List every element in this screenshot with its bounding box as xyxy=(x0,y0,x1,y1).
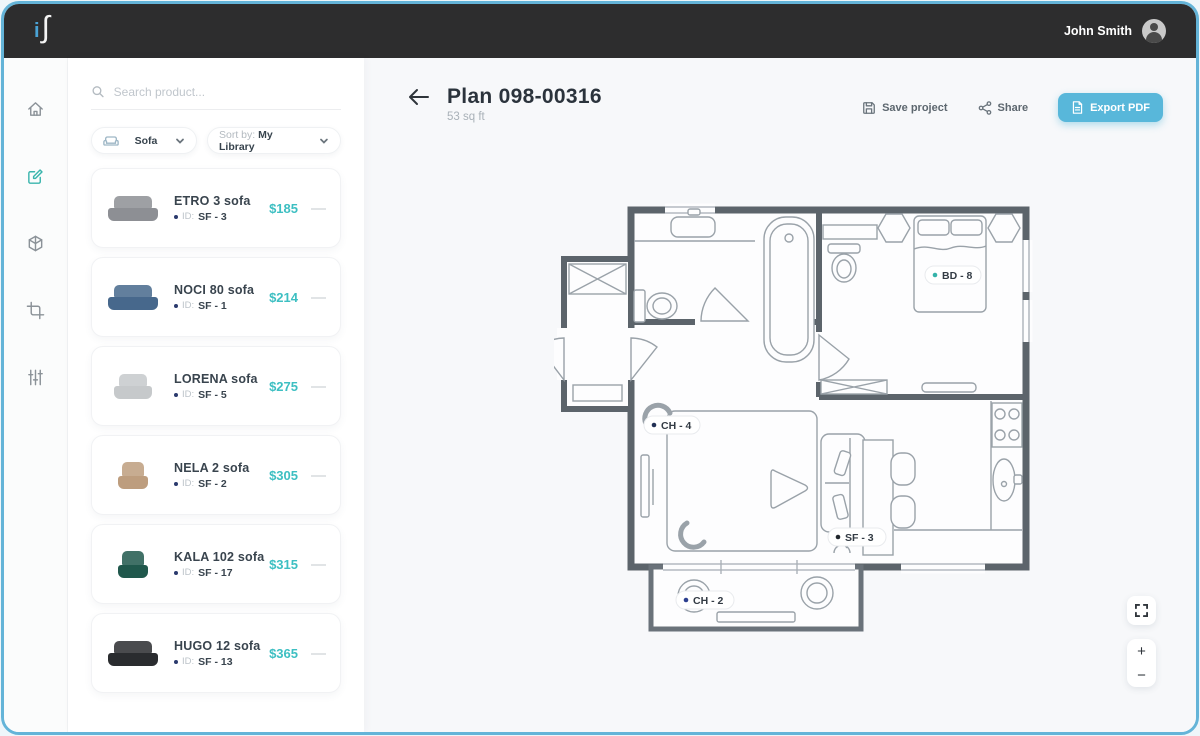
logo-i: i xyxy=(34,20,40,43)
id-dot xyxy=(174,482,178,486)
svg-text:BD - 8: BD - 8 xyxy=(942,270,972,282)
product-thumbnail xyxy=(104,274,162,320)
filter-row: Sofa Sort by: My Library xyxy=(91,127,341,154)
product-id: SF - 13 xyxy=(198,656,232,668)
top-bar: i ∫ John Smith xyxy=(4,4,1196,58)
product-list: ETRO 3 sofa ID: SF - 3 $185 — NOCI 80 xyxy=(91,168,341,693)
product-name: LORENA sofa xyxy=(174,372,258,386)
product-thumbnail xyxy=(104,630,162,676)
product-sidebar: Sofa Sort by: My Library xyxy=(68,58,364,732)
chevron-down-icon xyxy=(175,136,185,146)
share-icon xyxy=(978,101,992,115)
product-card[interactable]: HUGO 12 sofa ID: SF - 13 $365 — xyxy=(91,613,341,693)
edit-plan-icon[interactable] xyxy=(19,159,53,193)
product-price: $275 xyxy=(269,379,298,394)
product-card[interactable]: LORENA sofa ID: SF - 5 $275 — xyxy=(91,346,341,426)
crop-icon[interactable] xyxy=(19,293,53,327)
category-dropdown[interactable]: Sofa xyxy=(91,127,197,154)
home-icon[interactable] xyxy=(19,92,53,126)
plan-canvas[interactable]: Plan 098-00316 53 sq ft Save project Sha… xyxy=(364,58,1196,732)
product-name: NELA 2 sofa xyxy=(174,461,249,475)
save-icon xyxy=(862,101,876,115)
sort-dropdown[interactable]: Sort by: My Library xyxy=(207,127,341,154)
user-name: John Smith xyxy=(1064,24,1132,38)
label-ch2[interactable]: CH - 2 xyxy=(676,591,734,609)
fullscreen-button[interactable] xyxy=(1127,596,1156,625)
id-dot xyxy=(174,304,178,308)
product-id-label: ID: xyxy=(182,567,194,578)
product-id: SF - 1 xyxy=(198,300,227,312)
zoom-out-button[interactable]: − xyxy=(1127,663,1156,687)
remove-product-button[interactable]: — xyxy=(311,379,326,394)
search-input[interactable] xyxy=(114,85,341,99)
id-dot xyxy=(174,660,178,664)
product-id-label: ID: xyxy=(182,478,194,489)
product-card[interactable]: NELA 2 sofa ID: SF - 2 $305 — xyxy=(91,435,341,515)
chevron-down-icon xyxy=(319,136,329,146)
product-price: $305 xyxy=(269,468,298,483)
id-dot xyxy=(174,215,178,219)
product-id-label: ID: xyxy=(182,389,194,400)
search-bar[interactable] xyxy=(91,84,341,110)
label-bd8[interactable]: BD - 8 xyxy=(925,266,981,284)
svg-text:CH - 4: CH - 4 xyxy=(661,420,691,432)
product-card[interactable]: KALA 102 sofa ID: SF - 17 $315 — xyxy=(91,524,341,604)
product-name: KALA 102 sofa xyxy=(174,550,264,564)
sofa-icon xyxy=(103,135,119,147)
product-price: $365 xyxy=(269,646,298,661)
svg-text:CH - 2: CH - 2 xyxy=(693,595,723,607)
remove-product-button[interactable]: — xyxy=(311,290,326,305)
fullscreen-icon xyxy=(1135,604,1148,617)
save-project-button[interactable]: Save project xyxy=(862,101,947,115)
id-dot xyxy=(174,571,178,575)
product-name: ETRO 3 sofa xyxy=(174,194,251,208)
product-id: SF - 5 xyxy=(198,389,227,401)
label-ch4[interactable]: CH - 4 xyxy=(644,416,700,434)
remove-product-button[interactable]: — xyxy=(311,201,326,216)
plan-area: 53 sq ft xyxy=(447,111,602,123)
remove-product-button[interactable]: — xyxy=(311,646,326,661)
product-card[interactable]: ETRO 3 sofa ID: SF - 3 $185 — xyxy=(91,168,341,248)
product-id-label: ID: xyxy=(182,656,194,667)
product-price: $214 xyxy=(269,290,298,305)
product-thumbnail xyxy=(104,363,162,409)
remove-product-button[interactable]: — xyxy=(311,557,326,572)
product-id-label: ID: xyxy=(182,300,194,311)
export-pdf-button[interactable]: Export PDF xyxy=(1058,93,1163,122)
floor-plan[interactable]: BD - 8 CH - 4 SF - 3 xyxy=(554,200,1036,642)
product-price: $315 xyxy=(269,557,298,572)
user-menu[interactable]: John Smith xyxy=(1064,19,1166,43)
avatar[interactable] xyxy=(1142,19,1166,43)
product-card[interactable]: NOCI 80 sofa ID: SF - 1 $214 — xyxy=(91,257,341,337)
product-name: HUGO 12 sofa xyxy=(174,639,260,653)
id-dot xyxy=(174,393,178,397)
product-thumbnail xyxy=(104,452,162,498)
remove-product-button[interactable]: — xyxy=(311,468,326,483)
product-price: $185 xyxy=(269,201,298,216)
zoom-in-button[interactable]: + xyxy=(1127,639,1156,663)
product-thumbnail xyxy=(104,541,162,587)
app-logo: i ∫ xyxy=(34,20,50,43)
product-id-label: ID: xyxy=(182,211,194,222)
app-window: i ∫ John Smith xyxy=(1,1,1199,735)
arrow-left-icon xyxy=(408,88,430,106)
icon-rail xyxy=(4,58,68,732)
back-button[interactable] xyxy=(408,88,430,109)
filters-icon[interactable] xyxy=(19,360,53,394)
search-icon xyxy=(91,84,105,99)
view-controls: + − xyxy=(1127,596,1156,687)
product-id: SF - 3 xyxy=(198,211,227,223)
page-title: Plan 098-00316 xyxy=(447,85,602,109)
product-id: SF - 17 xyxy=(198,567,232,579)
canvas-header: Plan 098-00316 53 sq ft Save project Sha… xyxy=(364,58,1196,123)
product-thumbnail xyxy=(104,185,162,231)
product-name: NOCI 80 sofa xyxy=(174,283,254,297)
svg-text:SF - 3: SF - 3 xyxy=(845,532,874,544)
sort-label: Sort by: xyxy=(219,129,255,141)
pdf-file-icon xyxy=(1071,101,1084,114)
label-sf3[interactable]: SF - 3 xyxy=(828,528,886,546)
3d-view-icon[interactable] xyxy=(19,226,53,260)
share-button[interactable]: Share xyxy=(978,101,1029,115)
category-value: Sofa xyxy=(135,135,158,147)
product-id: SF - 2 xyxy=(198,478,227,490)
